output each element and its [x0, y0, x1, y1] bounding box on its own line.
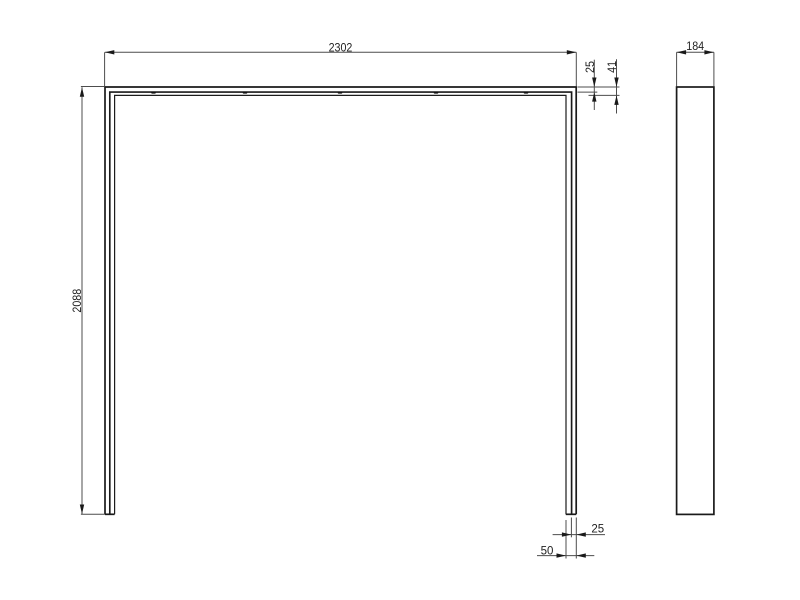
svg-text:184: 184	[686, 41, 704, 53]
svg-text:50: 50	[541, 546, 554, 558]
svg-text:41: 41	[607, 61, 619, 73]
svg-text:25: 25	[591, 524, 604, 536]
svg-text:25: 25	[585, 61, 597, 73]
svg-text:2302: 2302	[329, 42, 353, 54]
svg-text:2088: 2088	[72, 289, 84, 313]
